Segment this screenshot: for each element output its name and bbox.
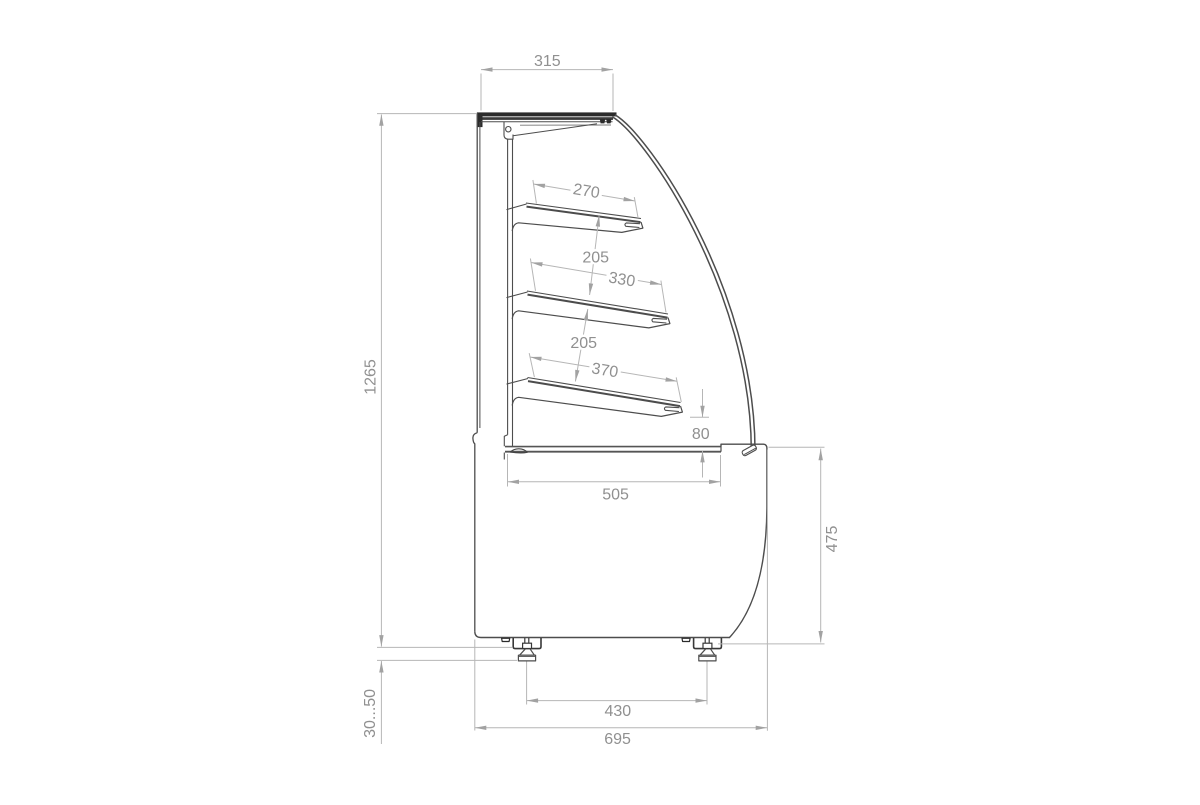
svg-text:205: 205: [582, 249, 609, 266]
svg-text:695: 695: [604, 731, 631, 748]
svg-text:505: 505: [602, 486, 629, 503]
svg-text:30...50: 30...50: [362, 689, 379, 738]
svg-text:430: 430: [604, 703, 631, 720]
svg-text:1265: 1265: [362, 359, 379, 395]
svg-text:315: 315: [534, 53, 561, 70]
svg-text:205: 205: [570, 335, 597, 352]
svg-text:80: 80: [692, 426, 710, 443]
svg-text:475: 475: [824, 526, 841, 553]
